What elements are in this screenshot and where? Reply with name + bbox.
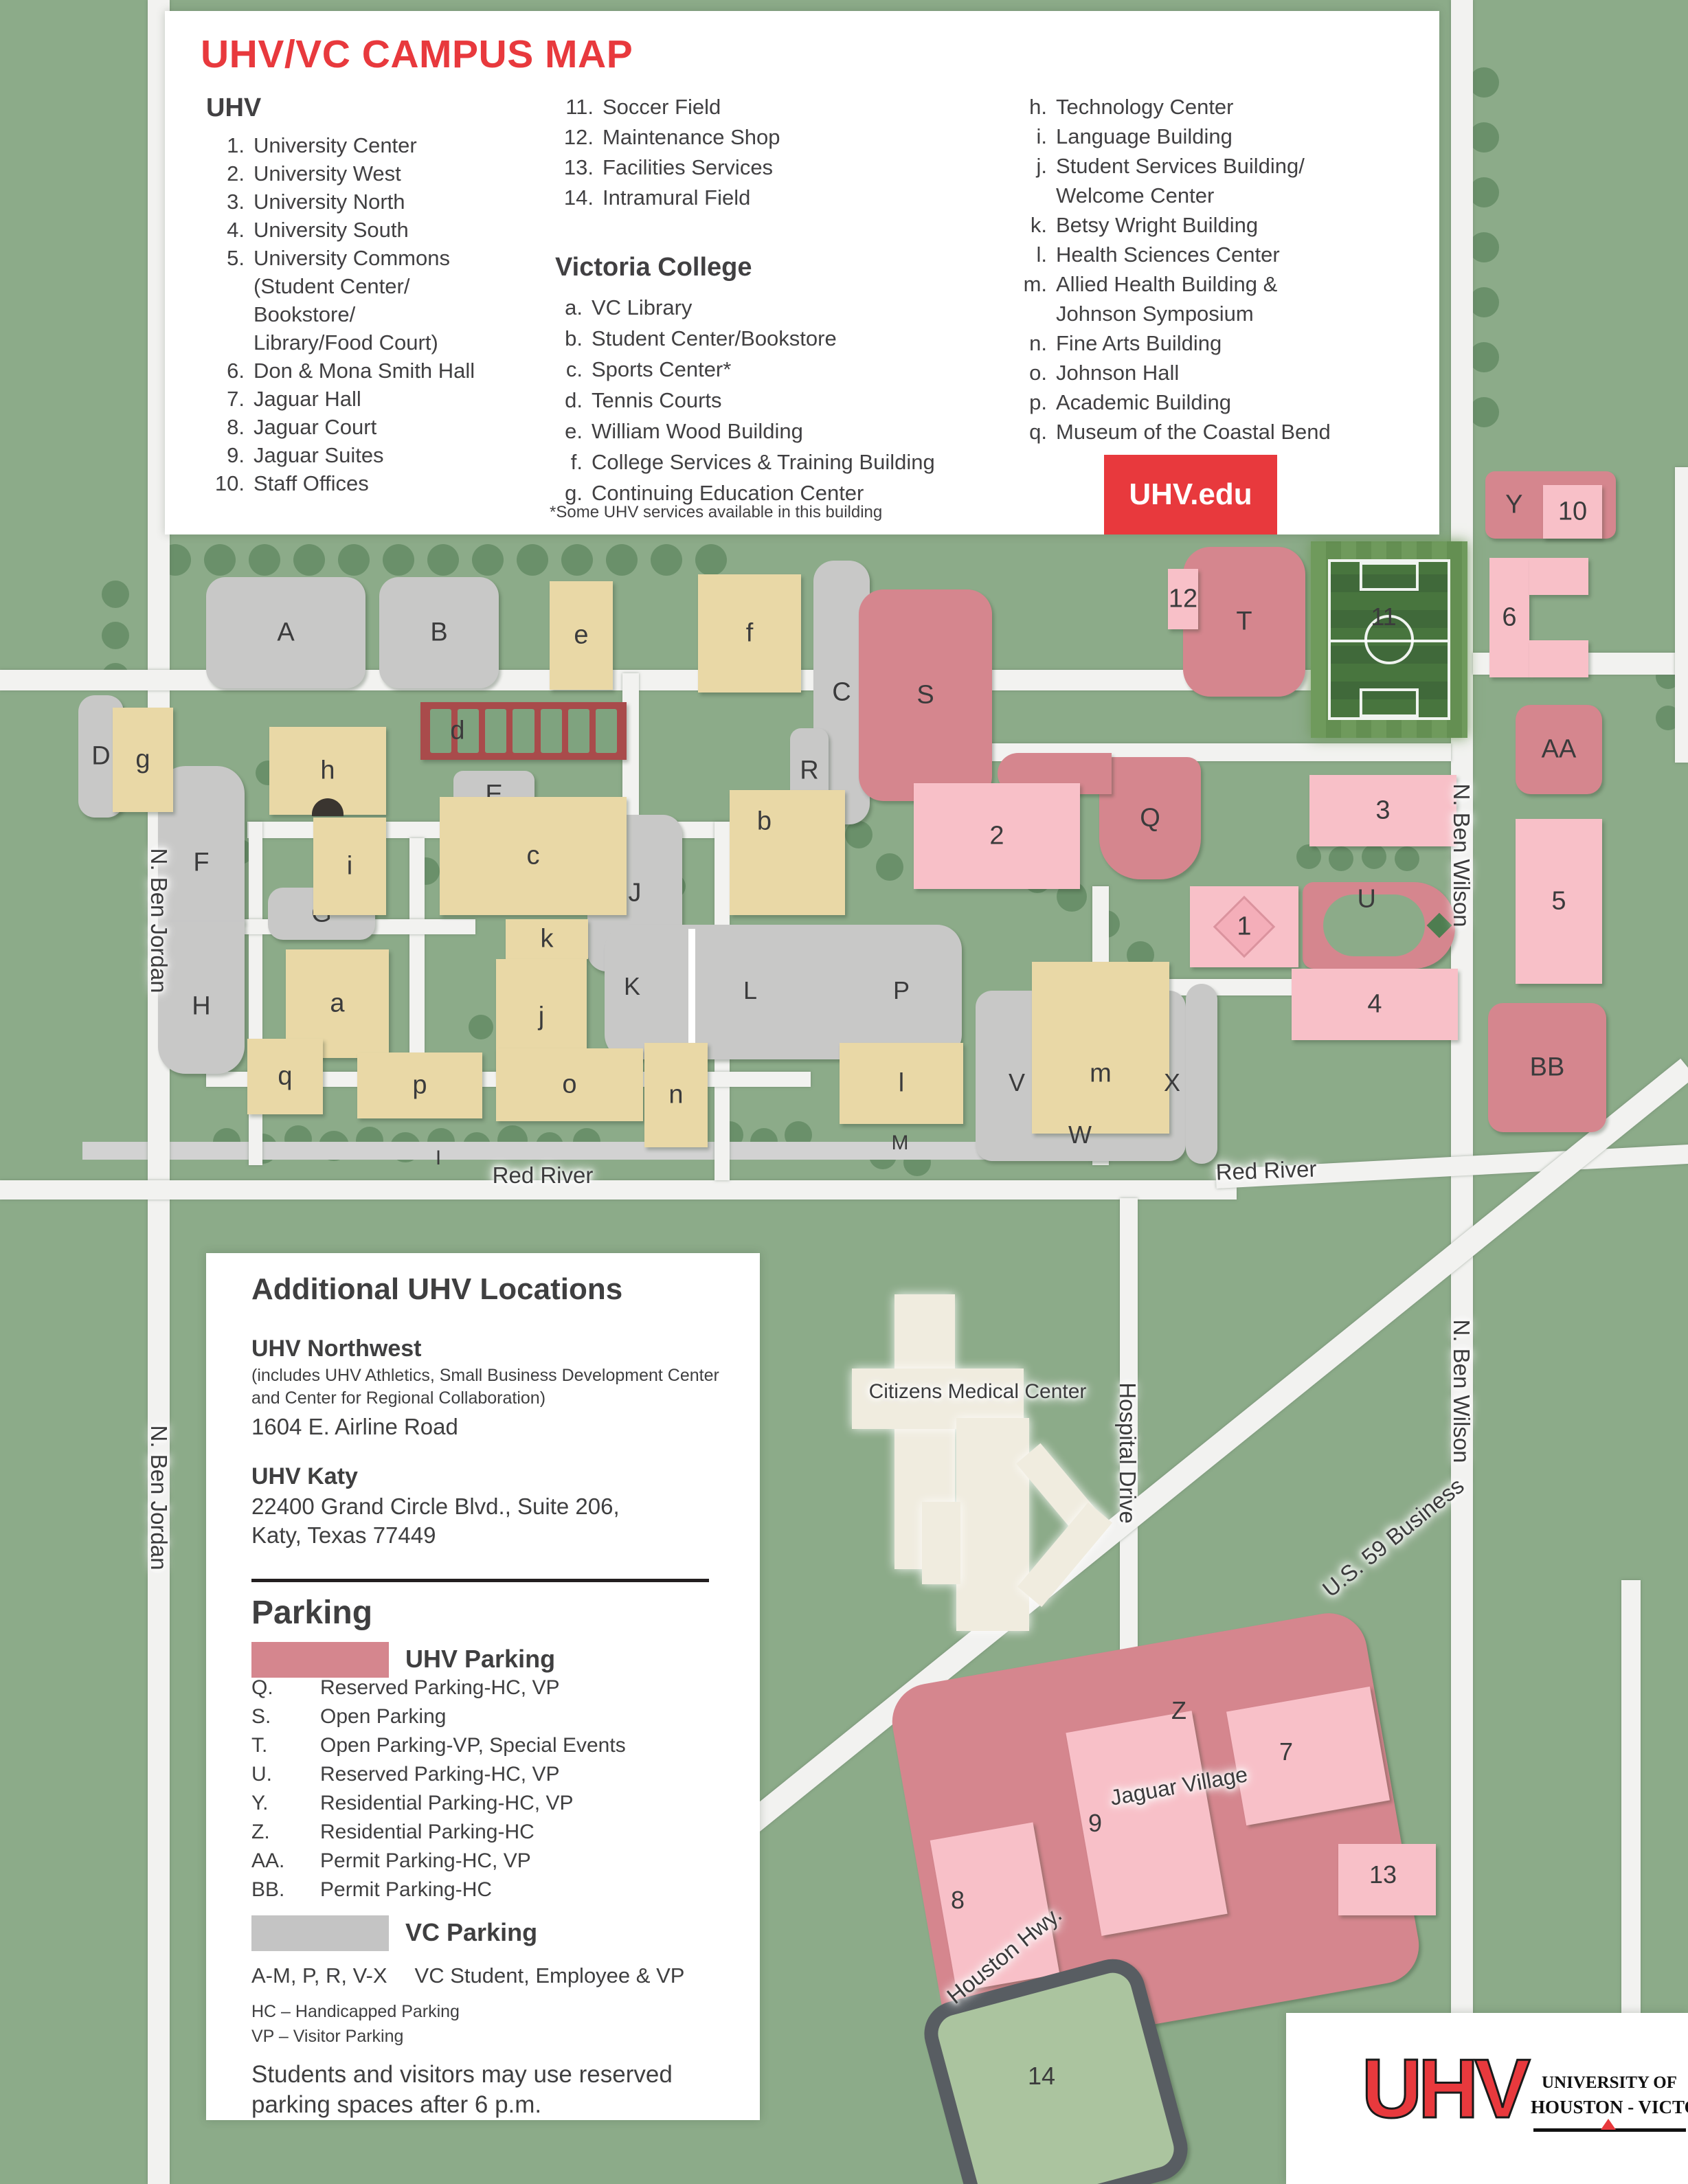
building-label-J: J (629, 879, 642, 908)
legend-item: 14.Intramural Field (550, 185, 780, 216)
building-i: i (313, 818, 386, 915)
legend-item: 11.Soccer Field (550, 95, 780, 125)
map-label-11: 11 (1371, 603, 1396, 631)
street-label: N. Ben Jordan (146, 848, 172, 993)
building-10: 10 (1543, 485, 1602, 539)
building-A: A (206, 577, 365, 688)
hc-note: HC – Handicapped Parking (251, 2002, 460, 2022)
legend-item-label: Jaguar Suites (245, 443, 384, 471)
parking-row-desc: Reserved Parking-HC, VP (320, 1763, 559, 1792)
building-6b (1529, 640, 1588, 677)
tree-icon (1296, 844, 1321, 869)
legend-item-label: University Center (245, 133, 417, 161)
tree-icon (695, 544, 727, 576)
tree-icon (1329, 846, 1353, 871)
building-c: c (440, 797, 627, 915)
legend-item: 2.University West (206, 161, 475, 190)
legend-item-label: Jaguar Hall (245, 387, 361, 415)
legend-item: c.Sports Center* (555, 357, 935, 388)
building-label-4: 4 (1367, 990, 1382, 1020)
legend-item-key: d. (555, 388, 583, 419)
legend-item-key: 3. (206, 190, 245, 218)
legend-vc-list-2: h.Technology Centeri.Language Buildingj.… (1004, 95, 1331, 449)
katy-addr-1: 22400 Grand Circle Blvd., Suite 206, (251, 1494, 620, 1520)
logo-line-1: UNIVERSITY OF (1542, 2073, 1677, 2093)
tree-icon (606, 544, 638, 576)
parking-row: AA.Permit Parking-HC, VP (251, 1849, 626, 1878)
legend-item: j.Student Services Building/ (1004, 154, 1331, 183)
legend-item-key: p. (1004, 390, 1047, 420)
legend-item: a.VC Library (555, 295, 935, 326)
legend-item-key: j. (1004, 154, 1047, 183)
legend-item-label: Academic Building (1047, 390, 1231, 420)
legend-item-label: Johnson Symposium (1047, 302, 1254, 331)
building-o: o (496, 1048, 643, 1121)
legend-item-key: m. (1004, 272, 1047, 302)
tree-icon (1469, 342, 1499, 372)
legend-item-label: Intramural Field (594, 185, 750, 216)
tree-icon (249, 544, 280, 576)
map-label-z: Z (1171, 1696, 1186, 1725)
parking-row-desc: Residential Parking-HC (320, 1821, 534, 1849)
legend-item-label: Sports Center* (583, 357, 731, 388)
legend-item: m.Allied Health Building & (1004, 272, 1331, 302)
tree-icon (561, 544, 593, 576)
building-label-3: 3 (1375, 796, 1390, 826)
legend-item-label: College Services & Training Building (583, 450, 935, 481)
street-label: Hospital Drive (1114, 1382, 1140, 1523)
tree-icon (1362, 844, 1386, 869)
legend-item-key: 6. (206, 359, 245, 387)
building-5: 5 (1516, 819, 1602, 984)
building-n: n (644, 1043, 708, 1147)
vc-parking-lots: A-M, P, R, V-X (251, 1963, 387, 1988)
logo-triangle-icon (1601, 2119, 1616, 2130)
building-label-BB: BB (1530, 1053, 1565, 1083)
parking-row-key: AA. (251, 1849, 320, 1878)
tree-icon (204, 544, 236, 576)
road (1675, 467, 1688, 763)
tree-icon (1469, 67, 1499, 98)
building-2: 2 (914, 783, 1080, 889)
building-label-q: q (278, 1062, 292, 1092)
parking-row-key: BB. (251, 1878, 320, 1907)
parking-row-key: U. (251, 1763, 320, 1792)
legend-item-key: 1. (206, 133, 245, 161)
legend-item-label: Allied Health Building & (1047, 272, 1277, 302)
legend-item-label: William Wood Building (583, 419, 803, 450)
legend-item-key: 13. (550, 155, 594, 185)
building-label-C: C (832, 678, 851, 708)
building-m: m (1032, 962, 1169, 1134)
legend-item: 5.University Commons (206, 246, 475, 274)
tree-icon (876, 853, 903, 881)
map-label-w: W (1068, 1121, 1092, 1149)
uhv-parking-rows: Q.Reserved Parking-HC, VPS.Open ParkingT… (251, 1676, 626, 1907)
building-k: k (506, 919, 588, 959)
parking-row-key: Y. (251, 1792, 320, 1821)
tree-icon (1469, 287, 1499, 317)
legend-item-label: Staff Offices (245, 471, 369, 499)
road (409, 838, 425, 1072)
tree-icon (1469, 122, 1499, 153)
northwest-address: 1604 E. Airline Road (251, 1414, 458, 1440)
legend-item-label: Language Building (1047, 124, 1233, 154)
building-1: 1 (1190, 886, 1298, 967)
legend-item: 12.Maintenance Shop (550, 125, 780, 155)
uhv-parking-label: UHV Parking (405, 1645, 555, 1674)
legend-uhv-list: 1.University Center2.University West3.Un… (206, 133, 475, 499)
tennis-court (430, 709, 451, 753)
building-label-h: h (320, 756, 335, 786)
logo-line-2: HOUSTON - VICTORIA (1531, 2097, 1688, 2118)
parking-row-key: Q. (251, 1676, 320, 1705)
tree-icon (469, 1015, 493, 1039)
legend-item-key: h. (1004, 95, 1047, 124)
legend-item: 6.Don & Mona Smith Hall (206, 359, 475, 387)
building-f: f (698, 574, 801, 693)
legend-item-label: Soccer Field (594, 95, 721, 125)
building-label-10: 10 (1558, 497, 1587, 527)
vp-note: VP – Visitor Parking (251, 2027, 403, 2047)
legend-item-key (206, 330, 245, 359)
building-d: d (420, 702, 627, 760)
vc-parking-label: VC Parking (405, 1918, 537, 1947)
legend-item-label: Facilities Services (594, 155, 773, 185)
vc-parking-swatch (251, 1915, 389, 1951)
building-label-U: U (1358, 885, 1376, 914)
building-label-p: p (412, 1071, 427, 1101)
logo-box: UHV UNIVERSITY OF HOUSTON - VICTORIA (1286, 2013, 1688, 2184)
tree-icon (427, 544, 459, 576)
legend-item-label: Student Center/Bookstore (583, 326, 837, 357)
legend-vc-list: a.VC Libraryb.Student Center/Bookstorec.… (555, 295, 935, 512)
legend-item: (Student Center/ (206, 274, 475, 302)
reserved-note-1: Students and visitors may use reserved (251, 2061, 673, 2089)
legend-item-key: 12. (550, 125, 594, 155)
legend-item: o.Johnson Hall (1004, 361, 1331, 390)
legend-item-key: q. (1004, 420, 1047, 449)
street-label: Red River (1215, 1156, 1317, 1185)
tree-icon (472, 544, 504, 576)
building-label-a: a (330, 989, 344, 1019)
building-label-j: j (539, 1002, 544, 1032)
legend-item: e.William Wood Building (555, 419, 935, 450)
building-label-H: H (192, 992, 210, 1022)
legend-item-key: 8. (206, 415, 245, 443)
legend-item-label: Fine Arts Building (1047, 331, 1222, 361)
building-cm4 (922, 1502, 960, 1584)
parking-row: Z.Residential Parking-HC (251, 1821, 626, 1849)
tennis-court (513, 709, 534, 753)
building-q: q (247, 1039, 323, 1114)
legend-box: UHV/VC CAMPUS MAP UHV 1.University Cente… (165, 11, 1439, 534)
legend-footnote: *Some UHV services available in this bui… (550, 503, 882, 522)
parking-row: BB.Permit Parking-HC (251, 1878, 626, 1907)
map-label-i: I (436, 1147, 441, 1170)
building-label-c: c (527, 842, 540, 871)
parking-row: T.Open Parking-VP, Special Events (251, 1734, 626, 1763)
building-label-A: A (277, 618, 294, 648)
legend-item-label: Johnson Hall (1047, 361, 1179, 390)
legend-item-label: Health Sciences Center (1047, 243, 1280, 272)
parking-row-desc: Permit Parking-HC (320, 1878, 492, 1907)
parking-row-key: Z. (251, 1821, 320, 1849)
divider (251, 1579, 709, 1582)
map-label-p: P (893, 976, 910, 1005)
building-11f (1311, 541, 1467, 738)
legend-item-label: University North (245, 190, 405, 218)
legend-item: 7.Jaguar Hall (206, 387, 475, 415)
legend-item-key: f. (555, 450, 583, 481)
legend-item-key: 2. (206, 161, 245, 190)
legend-item-key (1004, 302, 1047, 331)
legend-item-key: 9. (206, 443, 245, 471)
tree-icon (651, 544, 682, 576)
legend-item-key: i. (1004, 124, 1047, 154)
tree-icon (1469, 232, 1499, 262)
legend-item-key (1004, 183, 1047, 213)
legend-item-label: Museum of the Coastal Bend (1047, 420, 1331, 449)
legend-item-key: e. (555, 419, 583, 450)
tree-icon (1469, 177, 1499, 207)
katy-name: UHV Katy (251, 1463, 358, 1490)
parking-row-desc: Open Parking (320, 1705, 446, 1734)
parking-row-desc: Permit Parking-HC, VP (320, 1849, 531, 1878)
building-klp-div (688, 929, 695, 1055)
legend-item-key: 4. (206, 218, 245, 246)
building-label-b: b (757, 807, 772, 836)
map-label-v: V (1009, 1068, 1025, 1097)
building-B: B (379, 577, 499, 688)
legend-item-key: a. (555, 295, 583, 326)
legend-item-label: University Commons (245, 246, 450, 274)
legend-item-key: 5. (206, 246, 245, 274)
parking-row-desc: Open Parking-VP, Special Events (320, 1734, 626, 1763)
legend-item-key: 7. (206, 387, 245, 415)
building-BB: BB (1488, 1003, 1606, 1132)
building-label-F: F (193, 848, 209, 878)
map-label-citizens-medical-center: Citizens Medical Center (869, 1380, 1087, 1404)
legend-item-label: Maintenance Shop (594, 125, 780, 155)
building-Xstrip (1186, 984, 1217, 1164)
tree-icon (102, 622, 129, 649)
tree-icon (845, 821, 873, 848)
parking-row: S.Open Parking (251, 1705, 626, 1734)
tree-icon (1395, 846, 1419, 871)
street-label: N. Ben Wilson (1448, 1319, 1474, 1463)
building-label-n: n (668, 1081, 683, 1110)
legend-item-key: l. (1004, 243, 1047, 272)
legend-item: d.Tennis Courts (555, 388, 935, 419)
building-e: e (550, 581, 613, 690)
uhv-edu-button[interactable]: UHV.edu (1104, 455, 1277, 534)
legend-item: q.Museum of the Coastal Bend (1004, 420, 1331, 449)
building-label-o: o (562, 1070, 576, 1100)
map-label-7: 7 (1279, 1737, 1293, 1766)
vc-parking-desc: VC Student, Employee & VP (415, 1963, 685, 1988)
legend-item-label: Bookstore/ (245, 302, 355, 330)
legend-item-key: k. (1004, 213, 1047, 243)
building-label-i: i (347, 852, 352, 881)
legend-item-label: Jaguar Court (245, 415, 376, 443)
building-label-f: f (746, 619, 754, 649)
building-label-6: 6 (1502, 603, 1516, 633)
legend-item-key: o. (1004, 361, 1047, 390)
legend-item: Welcome Center (1004, 183, 1331, 213)
legend-item: Bookstore/ (206, 302, 475, 330)
tennis-court (485, 709, 506, 753)
tennis-court (568, 709, 589, 753)
campus-map-page: ABCDFHGJREefghdbcikjaqponlmSTYQUAABB1210… (0, 0, 1688, 2184)
vc-parking-row: A-M, P, R, V-XVC Student, Employee & VP (251, 1963, 684, 1988)
legend-item: f.College Services & Training Building (555, 450, 935, 481)
legend-item: Johnson Symposium (1004, 302, 1331, 331)
building-Q: Q (1099, 757, 1201, 879)
tree-icon (1469, 397, 1499, 427)
uhv-parking-swatch (251, 1642, 389, 1678)
building-6a (1529, 558, 1588, 595)
map-label-k: K (624, 972, 640, 1001)
building-label-m: m (1090, 1059, 1112, 1088)
map-label-8: 8 (951, 1886, 965, 1915)
street-label: N. Ben Wilson (1448, 783, 1474, 927)
legend-item-key: 14. (550, 185, 594, 216)
legend-item: k.Betsy Wright Building (1004, 213, 1331, 243)
legend-item: 3.University North (206, 190, 475, 218)
legend-item-label: VC Library (583, 295, 692, 326)
legend-item-label: Don & Mona Smith Hall (245, 359, 475, 387)
building-T: T (1183, 547, 1305, 697)
parking-row: Y.Residential Parking-HC, VP (251, 1792, 626, 1821)
legend-item-label: Tennis Courts (583, 388, 722, 419)
building-label-l: l (899, 1069, 904, 1099)
road (0, 1180, 1237, 1200)
info-heading: Additional UHV Locations (251, 1272, 622, 1307)
legend-item: 10.Staff Offices (206, 471, 475, 499)
legend-item-label: Library/Food Court) (245, 330, 438, 359)
building-label-T: T (1236, 607, 1252, 637)
building-label-D: D (91, 742, 110, 772)
northwest-note-1: (includes UHV Athletics, Small Business … (251, 1366, 719, 1386)
legend-item: b.Student Center/Bookstore (555, 326, 935, 357)
building-4: 4 (1292, 969, 1458, 1040)
legend-item: l.Health Sciences Center (1004, 243, 1331, 272)
legend-item: 8.Jaguar Court (206, 415, 475, 443)
tennis-court (541, 709, 562, 753)
map-label-14: 14 (1028, 2062, 1055, 2091)
parking-heading: Parking (251, 1594, 372, 1632)
map-label-9: 9 (1088, 1809, 1102, 1838)
building-cm3 (956, 1418, 1029, 1631)
building-label-1: 1 (1237, 912, 1251, 942)
legend-item: Library/Food Court) (206, 330, 475, 359)
pitch-marking (1360, 688, 1419, 717)
soccer-pitch (1328, 559, 1450, 721)
tree-icon (102, 581, 129, 608)
legend-item: 4.University South (206, 218, 475, 246)
street-label: U.S. 59 Business (1318, 1473, 1470, 1603)
building-label-g: g (135, 745, 150, 775)
legend-item-key: n. (1004, 331, 1047, 361)
map-label-m: M (892, 1132, 909, 1155)
building-p: p (357, 1052, 482, 1118)
parking-row-desc: Residential Parking-HC, VP (320, 1792, 573, 1821)
tree-icon (338, 544, 370, 576)
legend-item-label: Betsy Wright Building (1047, 213, 1258, 243)
parking-row: Q.Reserved Parking-HC, VP (251, 1676, 626, 1705)
parking-row-key: T. (251, 1734, 320, 1763)
building-12: 12 (1168, 569, 1198, 629)
building-label-B: B (430, 618, 447, 648)
legend-item-key: 11. (550, 95, 594, 125)
map-label-13: 13 (1369, 1860, 1397, 1889)
legend-item-key (206, 302, 245, 330)
building-label-2: 2 (989, 822, 1004, 851)
uhv-logo: UHV (1362, 2040, 1527, 2137)
northwest-name: UHV Northwest (251, 1336, 421, 1362)
building-U: U (1303, 882, 1455, 969)
page-title: UHV/VC CAMPUS MAP (201, 32, 633, 77)
legend-uhv-heading: UHV (206, 93, 261, 123)
building-label-S: S (916, 681, 934, 710)
building-label-AA: AA (1542, 735, 1577, 765)
tree-icon (517, 544, 548, 576)
legend-uhv-list-2: 11.Soccer Field12.Maintenance Shop13.Fac… (550, 95, 780, 216)
reserved-note-2: parking spaces after 6 p.m. (251, 2091, 541, 2119)
building-S: S (859, 589, 992, 801)
legend-item-label: Welcome Center (1047, 183, 1214, 213)
legend-item: p.Academic Building (1004, 390, 1331, 420)
legend-item: 1.University Center (206, 133, 475, 161)
legend-vc-heading: Victoria College (555, 253, 752, 282)
building-b: b (730, 790, 845, 915)
legend-item-key: b. (555, 326, 583, 357)
tree-icon (293, 544, 325, 576)
legend-item-key: c. (555, 357, 583, 388)
parking-row-key: S. (251, 1705, 320, 1734)
legend-item-label: (Student Center/ (245, 274, 409, 302)
legend-item-label: Technology Center (1047, 95, 1234, 124)
tree-icon (383, 544, 414, 576)
parking-row-desc: Reserved Parking-HC, VP (320, 1676, 559, 1705)
legend-item: n.Fine Arts Building (1004, 331, 1331, 361)
legend-item: h.Technology Center (1004, 95, 1331, 124)
street-label: N. Ben Jordan (146, 1426, 172, 1571)
legend-item: i.Language Building (1004, 124, 1331, 154)
legend-item: 9.Jaguar Suites (206, 443, 475, 471)
building-l: l (840, 1043, 963, 1124)
building-label-d: d (450, 717, 464, 746)
road (1451, 0, 1473, 2184)
legend-item-key (206, 274, 245, 302)
building-label-5: 5 (1551, 887, 1566, 916)
info-box: Additional UHV Locations UHV Northwest (… (206, 1253, 760, 2120)
northwest-note-2: and Center for Regional Collaboration) (251, 1388, 545, 1408)
map-label-l: L (743, 976, 757, 1005)
building-h: h (269, 727, 386, 815)
pitch-marking (1360, 562, 1419, 591)
building-label-k: k (541, 925, 554, 954)
building-3: 3 (1309, 775, 1456, 846)
map-label-x: X (1164, 1068, 1180, 1097)
dome-icon (312, 798, 344, 816)
legend-item-label: Student Services Building/ (1047, 154, 1305, 183)
parking-row: U.Reserved Parking-HC, VP (251, 1763, 626, 1792)
building-label-Y: Y (1505, 491, 1522, 520)
building-label-12: 12 (1169, 585, 1197, 614)
katy-addr-2: Katy, Texas 77449 (251, 1522, 436, 1549)
